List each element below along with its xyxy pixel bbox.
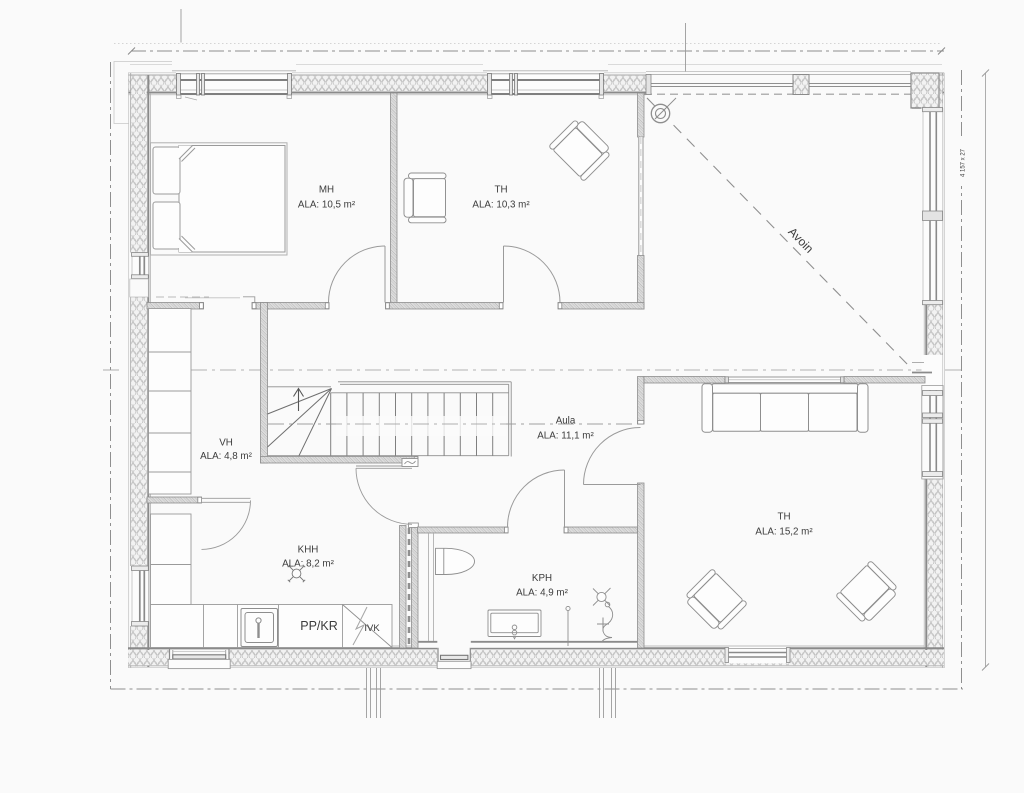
svg-text:ALA: 4,9 m²: ALA: 4,9 m² xyxy=(516,588,568,599)
svg-text:ALA: 4,8 m²: ALA: 4,8 m² xyxy=(200,451,252,462)
svg-text:4 157 x 27: 4 157 x 27 xyxy=(961,148,967,177)
svg-text:ALA: 8,2 m²: ALA: 8,2 m² xyxy=(282,559,334,570)
svg-text:KHH: KHH xyxy=(298,545,319,556)
svg-text:TH: TH xyxy=(494,185,507,196)
svg-text:ALA: 11,1 m²: ALA: 11,1 m² xyxy=(537,431,594,442)
svg-text:KPH: KPH xyxy=(532,573,552,584)
svg-text:ALA: 10,3 m²: ALA: 10,3 m² xyxy=(472,200,530,211)
svg-text:VH: VH xyxy=(219,438,233,449)
svg-text:ALA: 15,2 m²: ALA: 15,2 m² xyxy=(755,527,813,538)
svg-text:ALA: 10,5 m²: ALA: 10,5 m² xyxy=(298,200,356,211)
svg-text:PP/KR: PP/KR xyxy=(300,619,338,633)
svg-text:IVK: IVK xyxy=(364,623,380,634)
svg-text:Aula: Aula xyxy=(556,416,576,427)
svg-text:TH: TH xyxy=(777,512,790,523)
svg-text:MH: MH xyxy=(319,185,334,196)
